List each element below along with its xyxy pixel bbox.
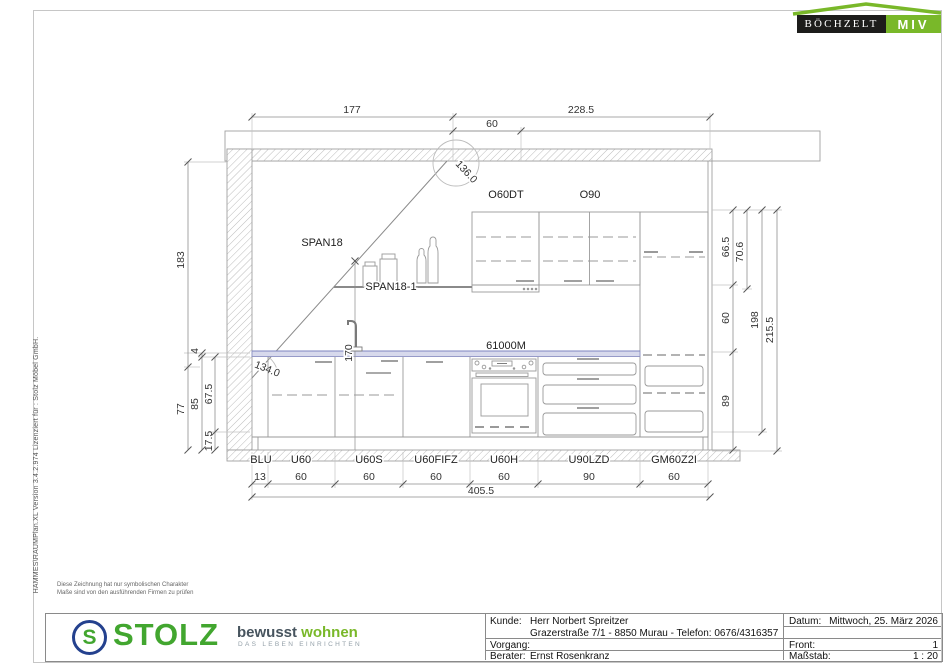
vent-dot xyxy=(531,288,533,290)
oven-dot xyxy=(489,368,491,370)
dim-183: 183 xyxy=(175,251,187,269)
footer-divider xyxy=(485,613,486,660)
dim-60-top: 60 xyxy=(486,118,498,130)
upper-o60dt xyxy=(472,212,539,285)
dim-70-6: 70.6 xyxy=(734,242,746,263)
tall-cabinet-body xyxy=(640,212,708,437)
drawer-basket xyxy=(543,385,636,404)
worktop-band xyxy=(252,351,640,357)
dim-170: 170 xyxy=(343,344,355,362)
label-u90lzd: U90LZD xyxy=(569,454,610,466)
label-blu: BLU xyxy=(250,454,271,466)
footer-divider xyxy=(783,613,784,660)
dim-60-right: 60 xyxy=(720,312,732,324)
dim-77: 77 xyxy=(175,403,187,415)
claim-line: bewusst wohnen xyxy=(237,624,358,641)
stolz-emblem: S xyxy=(72,620,107,655)
dim-total-405-5: 405.5 xyxy=(468,485,494,497)
drawer-basket xyxy=(543,413,636,435)
dim-60-b2: 60 xyxy=(363,471,375,483)
dim-17-5: 17.5 xyxy=(203,431,215,452)
vent-dot xyxy=(535,288,537,290)
oven-door xyxy=(472,378,536,433)
oven-knob xyxy=(482,365,486,369)
label-o60dt: O60DT xyxy=(488,189,524,201)
tall-cabinet-gm60z2i xyxy=(640,212,708,437)
vorgang-label: Vorgang: xyxy=(490,640,530,651)
bottle xyxy=(417,249,426,284)
oven-window xyxy=(481,384,528,416)
claim-subline: DAS LEBEN EINRICHTEN xyxy=(238,641,362,648)
canister-lid xyxy=(382,254,395,259)
dim-85: 85 xyxy=(189,398,201,410)
label-u60: U60 xyxy=(291,454,311,466)
dim-215-5: 215.5 xyxy=(764,317,776,343)
dim-90: 90 xyxy=(583,471,595,483)
upper-cabinets xyxy=(472,212,640,292)
tall-basket xyxy=(645,411,703,432)
dim-177: 177 xyxy=(343,104,361,116)
vent-dot xyxy=(527,288,529,290)
room-structure xyxy=(225,131,820,461)
oven-unit xyxy=(472,359,536,433)
stolz-s-icon: S xyxy=(82,627,96,648)
label-gm60z2i: GM60Z2I xyxy=(651,454,697,466)
oven-knob xyxy=(522,365,526,369)
datum-value: Mittwoch, 25. März 2026 xyxy=(798,616,938,627)
oven-vent-strip xyxy=(476,373,528,377)
claim-wohnen: wohnen xyxy=(297,624,358,641)
drawer-unit-u90lzd xyxy=(543,359,636,435)
kunde-label: Kunde: xyxy=(490,616,522,627)
dimension-texts: 177 60 228.5 183 77 4 85 67.5 17.5 66.5 … xyxy=(175,104,776,497)
extension-lines xyxy=(184,113,782,500)
worktop xyxy=(252,351,640,357)
wall-hatch xyxy=(227,149,252,450)
kitchen-elevation-drawing: 136.0 134.0 xyxy=(0,0,950,671)
label-u60s: U60S xyxy=(355,454,383,466)
berater-label: Berater: xyxy=(490,651,526,662)
front-value: 1 xyxy=(798,640,938,651)
dim-67-5: 67.5 xyxy=(203,384,215,405)
berater-value: Ernst Rosenkranz xyxy=(530,651,609,662)
angle-top-value: 136.0 xyxy=(453,158,480,186)
oven-knob xyxy=(475,361,479,365)
angle-bottom-value: 134.0 xyxy=(253,359,282,380)
stolz-logo: STOLZ xyxy=(113,617,219,653)
canister-lid xyxy=(365,262,375,266)
dimension-lines xyxy=(188,117,777,497)
vent-dot xyxy=(523,288,525,290)
label-u60fifz: U60FIFZ xyxy=(414,454,458,466)
dim-60-b6: 60 xyxy=(668,471,680,483)
dim-4: 4 xyxy=(189,348,201,354)
sloped-ceiling: 136.0 134.0 xyxy=(252,140,480,380)
kunde-address: Grazerstraße 7/1 - 8850 Murau - Telefon:… xyxy=(530,628,778,639)
label-u60h: U60H xyxy=(490,454,518,466)
dim-60-b3: 60 xyxy=(430,471,442,483)
dim-89: 89 xyxy=(720,395,732,407)
dim-198: 198 xyxy=(749,311,761,329)
dimension-ticks xyxy=(185,114,781,501)
label-span18: SPAN18 xyxy=(301,237,342,249)
oven-knob xyxy=(529,361,533,365)
label-span18-1: SPAN18-1 xyxy=(365,281,416,293)
label-o90: O90 xyxy=(580,189,601,201)
dim-13: 13 xyxy=(254,471,266,483)
label-61000m: 61000M xyxy=(486,340,526,352)
dim-60-b1: 60 xyxy=(295,471,307,483)
claim-bewusst: bewusst xyxy=(237,624,297,641)
dim-228-5: 228.5 xyxy=(568,104,594,116)
dim-66-5: 66.5 xyxy=(720,237,732,258)
dim-60-b4: 60 xyxy=(498,471,510,483)
item-labels: SPAN18 SPAN18-1 O60DT O90 61000M BLU U60… xyxy=(250,189,697,466)
bottle xyxy=(428,237,438,283)
massstab-value: 1 : 20 xyxy=(798,651,938,662)
oven-dot xyxy=(513,368,515,370)
drawer-basket xyxy=(543,363,636,375)
kunde-value: Herr Norbert Spreitzer xyxy=(530,616,628,627)
ceiling-hatch xyxy=(227,149,712,161)
tall-basket xyxy=(645,366,703,386)
